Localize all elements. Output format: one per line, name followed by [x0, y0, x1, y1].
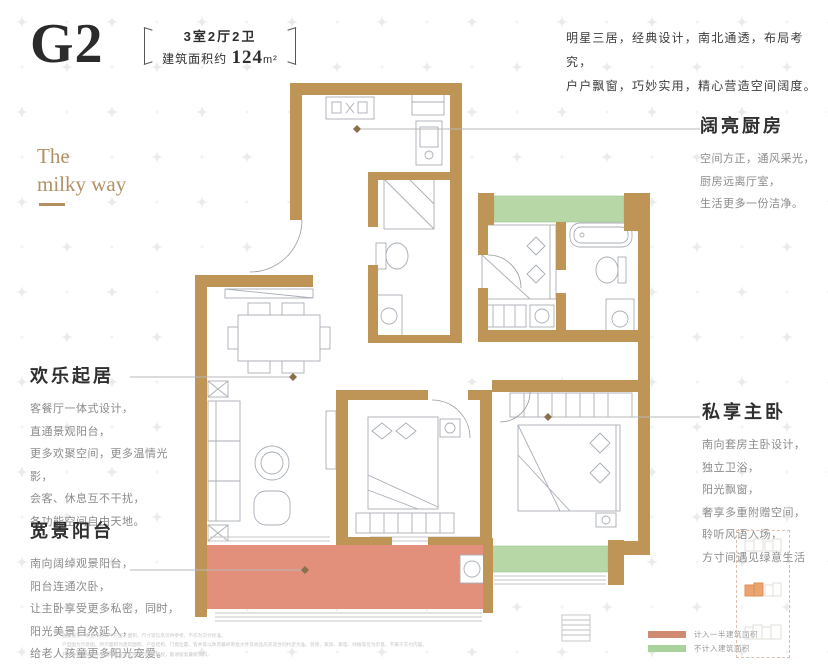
plan-code: G2: [30, 12, 104, 76]
disclaimer-line: 开发商在法律允许范围内保留对宣传资料的解释权，敬请留意最新资料。: [62, 652, 483, 659]
kitchen-line: 生活更多一份洁净。: [700, 193, 820, 216]
area-spec: 建筑面积约 124m²: [152, 47, 288, 69]
kitchen-line: 厨房远离厅室，: [700, 171, 820, 194]
section-kitchen-title: 阔亮厨房: [700, 112, 820, 138]
section-kitchen: 阔亮厨房 空间方正，通风采光， 厨房远离厅室， 生活更多一份洁净。: [700, 112, 820, 216]
master-line: 奢享多重附赠空间，: [702, 502, 822, 525]
brand-line1: The: [37, 142, 126, 170]
floor-plan: [130, 75, 700, 648]
bay-window-bottom-green: [492, 546, 608, 572]
building-key-plan: [736, 530, 790, 658]
disclaimer-line: 温馨提示：本宣传资料中户型、面积、尺寸等信息仅供参考，不作为交付标准。: [62, 633, 483, 640]
kitchen-line: 空间方正，通风采光，: [700, 148, 820, 171]
area-unit: m²: [263, 54, 278, 66]
plan-spec: 3室2厅2卫 建筑面积约 124m²: [152, 22, 288, 70]
tagline-line1: 明星三居，经典设计，南北通透，布局考究，: [566, 26, 818, 74]
brand-underline: [39, 203, 65, 206]
disclaimer-line: 户型图为示意图，所示面积为建筑面积，户型结构、门窗位置、管井等以政府最终审批文件…: [62, 642, 483, 649]
disclaimer: 温馨提示：本宣传资料中户型、面积、尺寸等信息仅供参考，不作为交付标准。 户型图为…: [62, 633, 602, 661]
left-bracket: [140, 22, 149, 70]
bay-window-top-green: [494, 196, 624, 222]
layout-spec: 3室2厅2卫: [152, 26, 288, 45]
master-line: 南向套房主卧设计，: [702, 434, 822, 457]
master-line: 独立卫浴，: [702, 457, 822, 480]
master-line: 阳光飘窗，: [702, 479, 822, 502]
area-value: 124: [232, 47, 264, 68]
brand-name: The milky way: [37, 142, 126, 199]
legend-swatch-red: [648, 631, 686, 638]
floorplan-brochure-page: G2 3室2厅2卫 建筑面积约 124m² 明星三居，经典设计，南北通透，布局考…: [0, 0, 828, 667]
brand-line2: milky way: [37, 170, 126, 198]
right-bracket: [291, 22, 300, 70]
area-prefix: 建筑面积约: [162, 52, 231, 66]
key-plan-buildings: [737, 531, 789, 657]
legend-swatch-green: [648, 645, 686, 652]
section-master-title: 私享主卧: [702, 398, 822, 424]
balcony-red-zone: [207, 545, 485, 609]
